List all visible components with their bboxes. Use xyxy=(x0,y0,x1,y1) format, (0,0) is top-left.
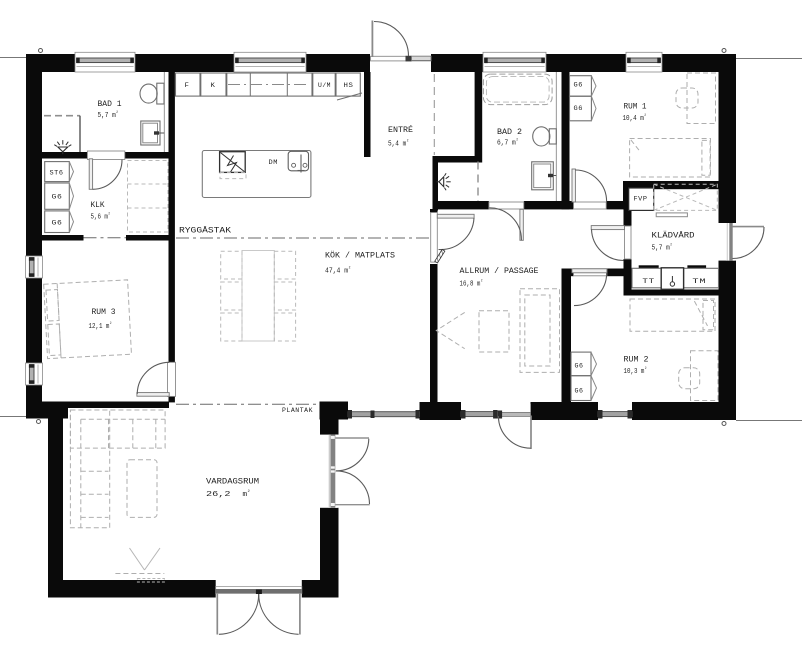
svg-text:PLANTAK: PLANTAK xyxy=(282,407,313,414)
svg-text:G6: G6 xyxy=(574,105,584,112)
svg-text:TT: TT xyxy=(642,278,655,285)
svg-text:10,4 m²: 10,4 m² xyxy=(623,113,647,124)
svg-text:FVP: FVP xyxy=(634,196,648,203)
svg-text:5,6 m²: 5,6 m² xyxy=(91,211,111,222)
svg-text:5,4 m²: 5,4 m² xyxy=(388,138,409,149)
svg-text:KÖK / MATPLATS: KÖK / MATPLATS xyxy=(325,252,395,261)
svg-text:26,2m²: 26,2m² xyxy=(206,489,250,500)
svg-text:ALLRUM / PASSAGE: ALLRUM / PASSAGE xyxy=(460,267,539,276)
svg-text:K: K xyxy=(211,82,216,89)
svg-text:RUM 1: RUM 1 xyxy=(624,103,647,112)
svg-text:DM: DM xyxy=(269,159,279,166)
svg-text:G6: G6 xyxy=(575,363,584,370)
svg-text:TM: TM xyxy=(692,278,706,285)
svg-text:G6: G6 xyxy=(52,220,63,227)
svg-text:VARDAGSRUM: VARDAGSRUM xyxy=(206,478,259,487)
svg-text:10,3 m²: 10,3 m² xyxy=(624,366,648,377)
svg-text:ENTRÉ: ENTRÉ xyxy=(388,126,413,135)
svg-text:KLÄDVÅRD: KLÄDVÅRD xyxy=(652,232,695,241)
svg-text:RUM 3: RUM 3 xyxy=(92,308,116,317)
svg-text:ST6: ST6 xyxy=(50,170,64,177)
svg-text:KLK: KLK xyxy=(91,201,105,210)
svg-text:G6: G6 xyxy=(574,82,584,89)
svg-text:F: F xyxy=(185,82,190,89)
svg-text:5,7 m²: 5,7 m² xyxy=(652,242,673,253)
svg-text:BAD 2: BAD 2 xyxy=(497,128,522,137)
svg-text:RYGGÅSTAK: RYGGÅSTAK xyxy=(179,227,231,236)
svg-text:G6: G6 xyxy=(575,388,584,395)
svg-text:47,4 m²: 47,4 m² xyxy=(325,265,351,276)
svg-text:BAD 1: BAD 1 xyxy=(98,100,122,109)
svg-text:U/M: U/M xyxy=(318,82,331,89)
svg-text:G6: G6 xyxy=(52,194,63,201)
svg-text:RUM 2: RUM 2 xyxy=(624,356,649,365)
svg-text:5,7 m²: 5,7 m² xyxy=(98,110,119,121)
svg-text:12,1 m²: 12,1 m² xyxy=(89,321,113,332)
svg-text:6,7 m²: 6,7 m² xyxy=(497,137,519,148)
svg-text:HS: HS xyxy=(344,82,354,89)
svg-text:16,8 m²: 16,8 m² xyxy=(460,278,484,289)
